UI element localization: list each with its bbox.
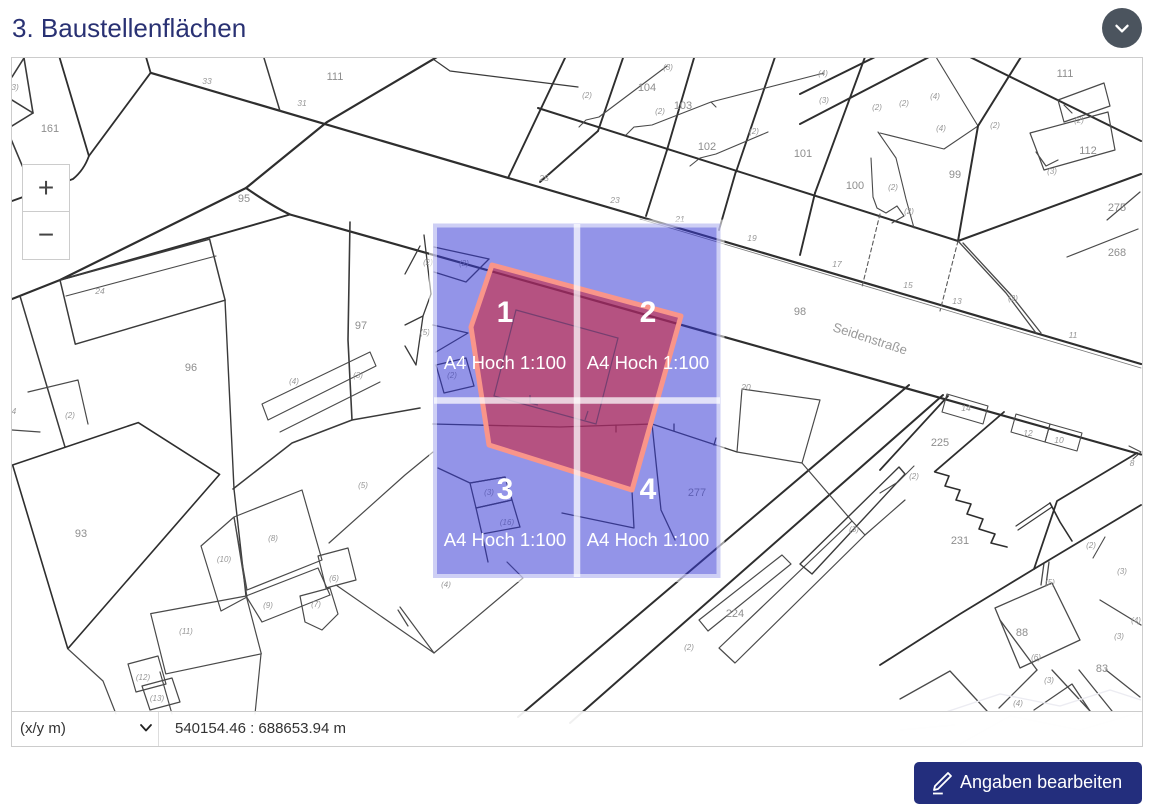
svg-text:23: 23	[609, 195, 620, 205]
svg-text:231: 231	[951, 535, 969, 547]
svg-text:(2): (2)	[1086, 541, 1096, 550]
svg-text:15: 15	[903, 280, 913, 290]
svg-text:33: 33	[202, 76, 212, 86]
svg-text:25: 25	[538, 173, 549, 183]
svg-text:(2): (2)	[684, 643, 694, 652]
svg-text:31: 31	[297, 98, 307, 108]
svg-text:225: 225	[931, 437, 949, 449]
svg-text:(10): (10)	[217, 555, 232, 564]
svg-text:3: 3	[497, 473, 514, 506]
svg-text:(2): (2)	[872, 103, 882, 112]
svg-text:(2): (2)	[990, 121, 1000, 130]
svg-text:112: 112	[1079, 145, 1097, 157]
svg-text:(2): (2)	[582, 91, 592, 100]
svg-text:A4 Hoch 1:100: A4 Hoch 1:100	[444, 529, 566, 550]
svg-text:(4): (4)	[1013, 699, 1023, 708]
svg-text:275: 275	[1108, 202, 1126, 214]
svg-text:(2): (2)	[888, 183, 898, 192]
svg-text:(3): (3)	[353, 371, 363, 380]
svg-text:(13): (13)	[150, 694, 165, 703]
svg-text:(3): (3)	[1114, 632, 1124, 641]
svg-text:(2): (2)	[749, 127, 759, 136]
svg-text:95: 95	[238, 193, 250, 205]
svg-text:(4): (4)	[936, 124, 946, 133]
svg-text:268: 268	[1108, 247, 1126, 259]
svg-text:101: 101	[794, 148, 812, 160]
svg-text:(5): (5)	[358, 481, 368, 490]
svg-text:97: 97	[355, 320, 367, 332]
svg-text:(3): (3)	[819, 96, 829, 105]
svg-text:(3): (3)	[1044, 676, 1054, 685]
svg-text:A4 Hoch 1:100: A4 Hoch 1:100	[587, 529, 709, 550]
svg-text:24: 24	[94, 286, 105, 296]
svg-text:(3): (3)	[849, 525, 859, 534]
svg-text:8: 8	[1130, 458, 1135, 468]
svg-text:17: 17	[832, 259, 842, 269]
svg-text:99: 99	[949, 169, 961, 181]
svg-text:(7): (7)	[311, 600, 321, 609]
svg-text:(11): (11)	[179, 627, 193, 636]
svg-text:4: 4	[640, 473, 657, 506]
svg-text:(2): (2)	[904, 207, 914, 216]
svg-text:A4 Hoch 1:100: A4 Hoch 1:100	[587, 352, 709, 373]
svg-text:88: 88	[1016, 627, 1028, 639]
svg-text:(4): (4)	[1131, 616, 1141, 625]
svg-text:96: 96	[185, 362, 197, 374]
svg-text:4: 4	[12, 407, 17, 416]
svg-text:(4): (4)	[289, 377, 299, 386]
svg-text:(2): (2)	[655, 107, 665, 116]
svg-text:2: 2	[640, 296, 657, 329]
svg-text:12: 12	[1023, 428, 1033, 438]
svg-text:(5): (5)	[1045, 578, 1055, 587]
svg-text:(2): (2)	[1074, 116, 1084, 125]
svg-text:(4): (4)	[930, 92, 940, 101]
svg-text:(5): (5)	[420, 328, 430, 337]
svg-text:(8): (8)	[268, 534, 278, 543]
svg-text:(2): (2)	[899, 99, 909, 108]
svg-text:20: 20	[740, 382, 751, 392]
svg-text:14: 14	[961, 403, 971, 413]
svg-text:(2): (2)	[909, 472, 919, 481]
svg-text:(3): (3)	[663, 63, 673, 72]
svg-text:(2): (2)	[1008, 294, 1018, 303]
svg-text:(2): (2)	[65, 411, 75, 420]
svg-text:104: 104	[638, 82, 656, 94]
svg-text:102: 102	[698, 141, 716, 153]
svg-text:(3): (3)	[1117, 567, 1127, 576]
svg-text:93: 93	[75, 528, 87, 540]
svg-text:13: 13	[952, 296, 962, 306]
svg-text:103: 103	[674, 100, 692, 112]
svg-text:A4 Hoch 1:100: A4 Hoch 1:100	[444, 352, 566, 373]
svg-text:(9): (9)	[263, 601, 273, 610]
svg-text:1: 1	[497, 296, 514, 329]
svg-text:(3): (3)	[1047, 167, 1057, 176]
svg-text:10: 10	[1054, 435, 1064, 445]
svg-text:(12): (12)	[136, 673, 151, 682]
svg-text:98: 98	[794, 306, 806, 318]
svg-text:161: 161	[41, 123, 59, 135]
svg-text:111: 111	[327, 71, 344, 83]
svg-text:83: 83	[1096, 663, 1108, 675]
svg-text:(4): (4)	[818, 69, 828, 78]
svg-text:11: 11	[1069, 330, 1078, 340]
svg-text:(6): (6)	[1031, 653, 1041, 662]
svg-text:19: 19	[747, 233, 757, 243]
svg-text:224: 224	[726, 608, 744, 620]
svg-text:3): 3)	[12, 82, 19, 92]
svg-text:100: 100	[846, 180, 864, 192]
svg-text:111: 111	[1057, 68, 1074, 80]
svg-text:(6): (6)	[329, 574, 339, 583]
